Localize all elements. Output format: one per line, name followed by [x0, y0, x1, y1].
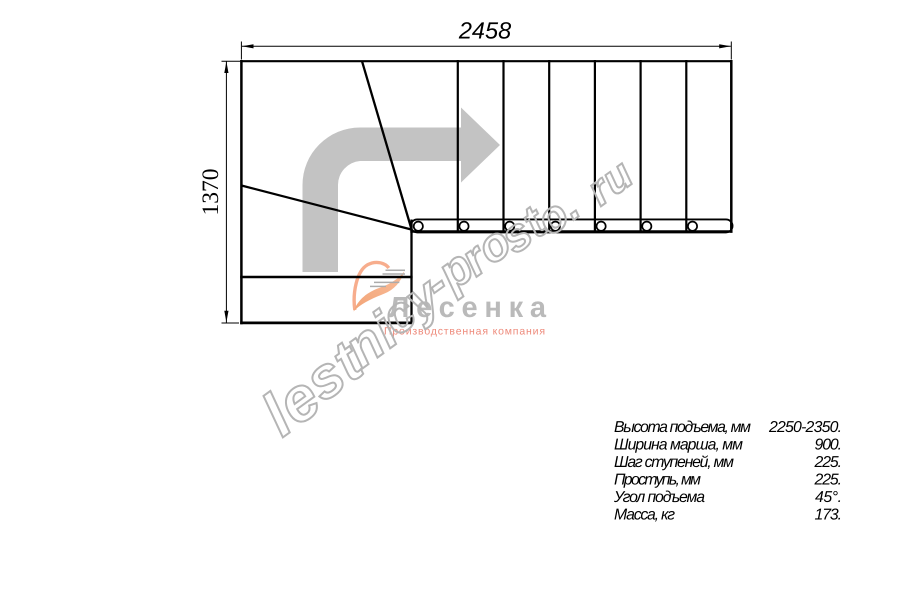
svg-text:2458: 2458	[458, 18, 511, 44]
svg-text:2250-2350.: 2250-2350.	[768, 419, 842, 436]
svg-text:173.: 173.	[815, 506, 843, 523]
svg-text:Шаг ступеней, мм: Шаг ступеней, мм	[614, 454, 734, 471]
svg-text:Угол подъема: Угол подъема	[613, 489, 705, 506]
svg-text:Проступь, мм: Проступь, мм	[614, 471, 701, 488]
svg-text:Ширина марша, мм: Ширина марша, мм	[614, 436, 743, 453]
svg-text:Высота подъема, мм: Высота подъема, мм	[614, 419, 751, 436]
svg-text:45°.: 45°.	[815, 489, 842, 506]
svg-text:225.: 225.	[814, 454, 843, 471]
svg-text:1370: 1370	[198, 169, 224, 216]
svg-text:Масса, кг: Масса, кг	[614, 506, 675, 523]
svg-text:900.: 900.	[815, 436, 843, 453]
svg-text:225.: 225.	[814, 471, 843, 488]
